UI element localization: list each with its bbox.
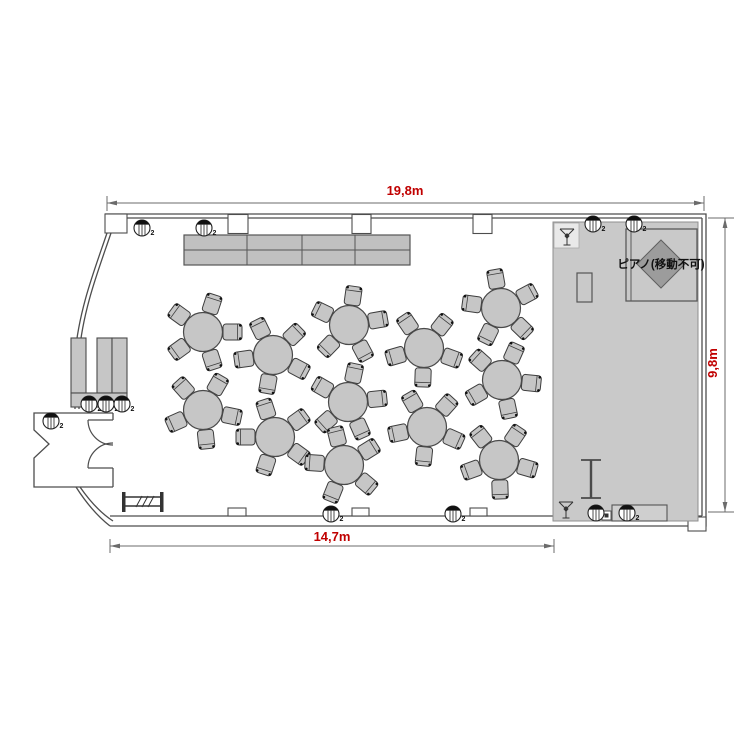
dim-line-top <box>107 196 704 211</box>
chair <box>367 390 388 408</box>
table-top <box>408 408 447 447</box>
chair-corner-dot <box>239 324 242 327</box>
round-table <box>460 423 539 499</box>
chair <box>344 362 364 384</box>
round-tables-layer <box>164 268 542 504</box>
table-top <box>483 361 522 400</box>
chair-seat <box>221 406 243 426</box>
buffet-table <box>184 235 410 265</box>
chair <box>461 295 482 313</box>
chair <box>197 429 215 450</box>
door-swing-arc-top <box>88 420 113 445</box>
chair <box>223 324 242 340</box>
downlight-shade <box>627 216 641 221</box>
round-table <box>384 311 463 387</box>
downlight-icon: 2 <box>114 396 135 413</box>
downlight-icon: 2 <box>43 413 64 430</box>
chair-seat <box>498 398 518 420</box>
downlight-shade <box>135 220 149 225</box>
downlight-count: 2 <box>636 515 640 522</box>
downlight-count: 2 <box>151 230 155 237</box>
round-table <box>461 268 539 346</box>
chair-corner-dot <box>236 442 239 445</box>
pillar-notch <box>352 508 369 516</box>
chair-seat <box>486 268 505 289</box>
round-table <box>305 425 382 504</box>
round-table <box>236 397 311 476</box>
reception-rack <box>97 338 112 393</box>
round-table <box>164 372 243 449</box>
chair <box>498 398 518 420</box>
top-dimension-label: 19,8m <box>387 183 424 198</box>
chair <box>258 373 277 394</box>
chair-corner-dot <box>236 429 239 432</box>
round-table <box>167 292 242 371</box>
downlight-icon: 2 <box>196 220 217 237</box>
chair-seat <box>367 310 388 329</box>
wall-curve-bottom-inner <box>80 487 113 521</box>
chair <box>387 423 409 443</box>
pillar-notch <box>473 215 492 234</box>
chair <box>233 350 254 368</box>
pillar-notch <box>470 508 487 516</box>
pillar-notch <box>228 215 248 234</box>
chair <box>367 310 388 329</box>
chair <box>521 374 542 392</box>
downlight-icon: 2 <box>323 506 344 523</box>
right-dimension-label: 9,8m <box>705 348 720 378</box>
table-top <box>325 446 364 485</box>
downlight-shade <box>324 506 338 511</box>
chair-seat <box>387 423 409 443</box>
floor-plan-svg: 22222222222 19,8m 14,7m 9,8m ピアノ(移動不可) <box>0 0 750 750</box>
table-top <box>256 418 295 457</box>
chair <box>236 429 255 445</box>
chair <box>415 368 432 388</box>
chair-seat <box>516 458 539 479</box>
chair <box>492 480 509 500</box>
chair <box>344 285 362 306</box>
chair-corner-dot <box>239 337 242 340</box>
entrance-double-door <box>88 420 113 468</box>
bottom-dimension-label: 14,7m <box>314 529 351 544</box>
downlight-count: 2 <box>643 226 647 233</box>
door-swing-arc-bottom <box>88 443 113 468</box>
round-table <box>387 389 466 466</box>
chair <box>516 458 539 479</box>
chair-backrest-line <box>415 382 431 383</box>
chair <box>486 268 505 289</box>
table-top <box>184 391 223 430</box>
downlight-count: 2 <box>340 516 344 523</box>
stage-small-box-dot <box>605 514 609 518</box>
downlight-count: 2 <box>213 230 217 237</box>
downlight-shade <box>197 220 211 225</box>
downlight-count: 2 <box>131 406 135 413</box>
floor-plan-canvas: 22222222222 19,8m 14,7m 9,8m ピアノ(移動不可) <box>0 0 750 750</box>
chair <box>221 406 243 426</box>
chair <box>415 446 433 467</box>
downlight-icon: 2 <box>445 506 466 523</box>
round-table <box>464 341 541 420</box>
stage-small-table <box>577 273 592 302</box>
reception-rack <box>71 338 86 393</box>
downlight-icon <box>588 505 604 521</box>
chair-backrest-line <box>492 494 508 495</box>
table-top <box>184 313 223 352</box>
downlight-count: 2 <box>602 226 606 233</box>
chair-seat <box>236 429 255 445</box>
downlight-count: 2 <box>60 423 64 430</box>
partition-symbol <box>122 492 164 512</box>
chair-seat <box>344 362 364 384</box>
chair <box>305 454 325 471</box>
reception-rack <box>112 338 127 393</box>
round-table <box>310 362 387 441</box>
chair <box>384 346 407 367</box>
table-top <box>480 441 519 480</box>
round-table <box>233 316 311 394</box>
downlight-shade <box>44 413 58 418</box>
downlight-shade <box>586 216 600 221</box>
chair-seat <box>327 425 347 447</box>
downlight-icon: 2 <box>134 220 155 237</box>
round-table <box>310 285 388 363</box>
chair-seat <box>384 346 407 367</box>
pillar-notch <box>105 214 127 233</box>
table-top <box>405 329 444 368</box>
pillar-notch <box>352 215 371 234</box>
table-top <box>254 336 293 375</box>
table-top <box>329 383 368 422</box>
downlight-shade <box>446 506 460 511</box>
pillar-notch <box>228 508 246 516</box>
downlight-count: 2 <box>462 516 466 523</box>
chair <box>327 425 347 447</box>
table-top <box>330 306 369 345</box>
chair-seat <box>223 324 242 340</box>
wall-curve-bottom-outer <box>76 487 110 526</box>
chair-seat <box>258 373 277 394</box>
piano-label: ピアノ(移動不可) <box>617 257 704 271</box>
table-top <box>482 289 521 328</box>
